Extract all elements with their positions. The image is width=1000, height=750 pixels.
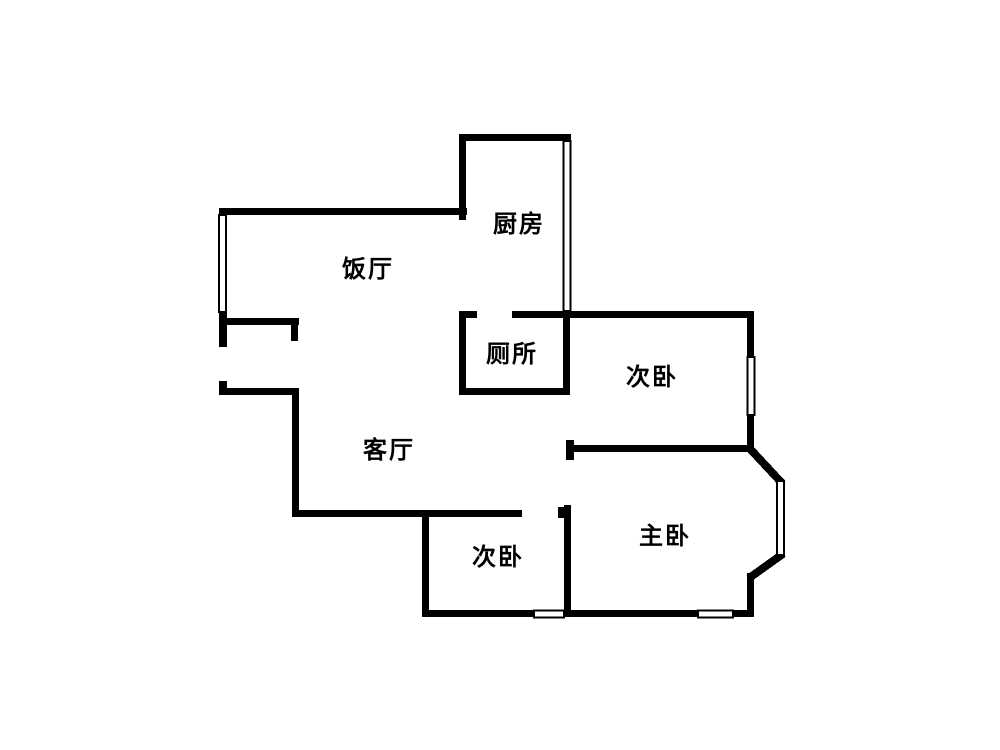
window-kitchen-east bbox=[564, 141, 571, 311]
wall-foyer-south bbox=[219, 388, 299, 395]
window-bedroom-south-south bbox=[534, 611, 564, 618]
room-label-master-bedroom: 主卧 bbox=[639, 522, 691, 550]
wall-west-entry-upper bbox=[219, 311, 227, 347]
window-dining-west bbox=[219, 215, 226, 312]
wall-south-b bbox=[563, 610, 699, 617]
wall-foyer-north-stub bbox=[291, 325, 298, 341]
wall-living-south bbox=[292, 510, 522, 517]
wall-toilet-south bbox=[459, 388, 570, 395]
window-master-south bbox=[698, 611, 733, 618]
wall-bedroom-north-top bbox=[563, 311, 754, 318]
wall-foyer-north bbox=[219, 318, 299, 325]
wall-kitchen-north bbox=[459, 134, 571, 141]
wall-toilet-north-stub bbox=[459, 311, 477, 318]
wall-south-c bbox=[732, 610, 754, 617]
room-label-bedroom-north: 次卧 bbox=[626, 363, 678, 391]
wall-master-north bbox=[566, 445, 750, 452]
background bbox=[0, 0, 1000, 750]
room-label-living: 客厅 bbox=[363, 436, 415, 464]
wall-south-a bbox=[422, 610, 534, 617]
wall-toilet-west bbox=[459, 311, 466, 395]
window-master-bay bbox=[777, 481, 784, 555]
wall-master-west bbox=[564, 505, 571, 617]
room-label-kitchen: 厨房 bbox=[493, 210, 545, 238]
wall-bedroom-south-west bbox=[422, 510, 429, 617]
floor-plan-canvas: 厨房 饭厅 厕所 次卧 客厅 主卧 次卧 bbox=[0, 0, 1000, 750]
room-label-bedroom-south: 次卧 bbox=[472, 543, 524, 571]
wall-toilet-east bbox=[563, 310, 570, 395]
floor-plan-drawing: 厨房 饭厅 厕所 次卧 客厅 主卧 次卧 bbox=[0, 0, 1000, 750]
room-label-dining: 饭厅 bbox=[342, 255, 394, 283]
wall-master-west-jamb-cap bbox=[558, 507, 565, 518]
wall-toilet-north bbox=[512, 311, 571, 318]
window-bedroom-north-east bbox=[748, 357, 755, 415]
wall-kitchen-west bbox=[459, 134, 466, 220]
wall-master-north-jamb bbox=[566, 440, 574, 460]
wall-dining-north bbox=[219, 208, 467, 215]
wall-living-west bbox=[292, 388, 299, 517]
room-label-toilet: 厕所 bbox=[486, 340, 538, 368]
wall-east-upper bbox=[747, 311, 754, 358]
